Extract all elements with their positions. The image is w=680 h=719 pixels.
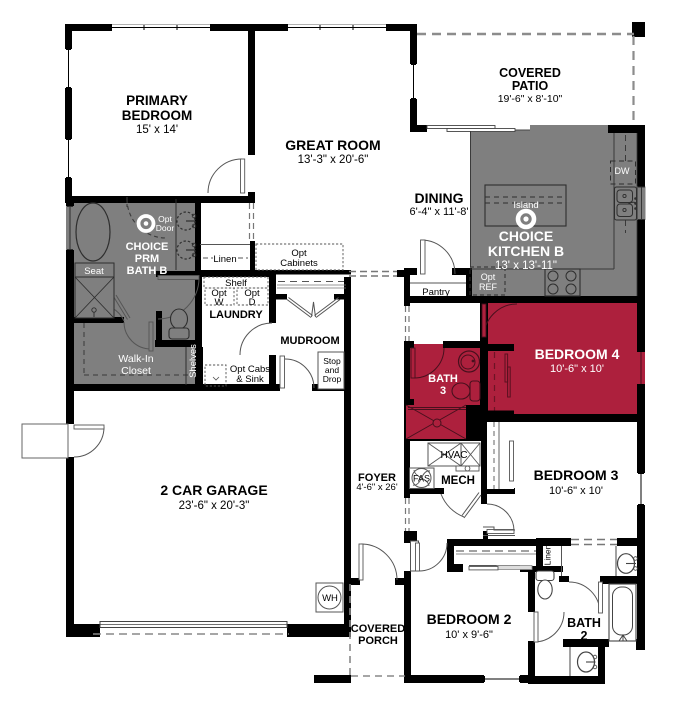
svg-text:BEDROOM 3: BEDROOM 3 (534, 467, 619, 483)
svg-text:Walk-In: Walk-In (118, 353, 153, 365)
svg-text:6'-4" x 11'-8': 6'-4" x 11'-8' (410, 206, 469, 218)
svg-text:10'-6" x 10': 10'-6" x 10' (550, 363, 604, 375)
svg-text:BEDROOM: BEDROOM (122, 108, 193, 123)
svg-text:PATIO: PATIO (512, 79, 549, 93)
svg-text:PRIMARY: PRIMARY (126, 93, 188, 108)
svg-text:Drop: Drop (323, 374, 342, 384)
svg-text:& Sink: & Sink (236, 374, 264, 385)
svg-text:REF: REF (479, 282, 498, 292)
svg-text:10'-6" x 10': 10'-6" x 10' (549, 485, 603, 497)
svg-text:4'-6" x 26': 4'-6" x 26' (356, 482, 398, 493)
svg-text:CHOICE: CHOICE (126, 241, 169, 253)
svg-text:10' x 9'-6": 10' x 9'-6" (445, 629, 493, 641)
svg-text:GREAT ROOM: GREAT ROOM (285, 137, 380, 153)
svg-text:19'-6" x 8'-10": 19'-6" x 8'-10" (498, 93, 563, 105)
svg-text:FAS: FAS (413, 474, 430, 484)
svg-text:13' x 13'-11": 13' x 13'-11" (495, 260, 557, 272)
svg-text:3: 3 (440, 385, 446, 397)
svg-text:WH: WH (322, 593, 338, 604)
svg-text:2: 2 (581, 629, 588, 643)
svg-text:COVERED: COVERED (499, 66, 561, 80)
svg-text:Shelves: Shelves (188, 344, 199, 378)
svg-text:13'-3" x 20'-6": 13'-3" x 20'-6" (298, 154, 369, 166)
svg-text:W: W (215, 297, 224, 308)
svg-text:DINING: DINING (415, 190, 464, 206)
svg-text:LAUNDRY: LAUNDRY (209, 309, 263, 321)
svg-text:BATH: BATH (428, 373, 458, 385)
svg-text:D: D (249, 297, 256, 308)
svg-text:HVAC: HVAC (440, 450, 467, 461)
svg-text:BEDROOM 2: BEDROOM 2 (427, 611, 512, 627)
svg-text:Closet: Closet (121, 365, 151, 377)
svg-text:MUDROOM: MUDROOM (280, 335, 339, 347)
svg-text:23'-6" x 20'-3": 23'-6" x 20'-3" (179, 500, 250, 512)
svg-text:15' x 14': 15' x 14' (136, 124, 178, 136)
svg-text:BATH: BATH (567, 616, 601, 630)
svg-text:Opt: Opt (481, 272, 496, 282)
svg-text:Cabinets: Cabinets (280, 258, 318, 269)
svg-text:BATH B: BATH B (127, 265, 168, 277)
svg-text:Linen: Linen (213, 254, 236, 265)
svg-text:DW: DW (615, 166, 630, 176)
svg-text:BEDROOM 4: BEDROOM 4 (535, 346, 620, 362)
svg-text:PRM: PRM (135, 253, 159, 265)
svg-text:Pantry: Pantry (422, 287, 450, 298)
svg-text:MECH: MECH (441, 475, 475, 487)
svg-text:KITCHEN B: KITCHEN B (488, 243, 564, 259)
svg-text:PORCH: PORCH (358, 635, 398, 647)
svg-text:Island: Island (513, 200, 538, 211)
svg-text:Door: Door (156, 223, 175, 233)
svg-text:Seat: Seat (84, 266, 104, 277)
svg-text:CHOICE: CHOICE (499, 228, 553, 244)
svg-text:Linen: Linen (543, 544, 553, 565)
svg-text:COVERED: COVERED (351, 623, 405, 635)
svg-text:2 CAR GARAGE: 2 CAR GARAGE (160, 482, 267, 498)
